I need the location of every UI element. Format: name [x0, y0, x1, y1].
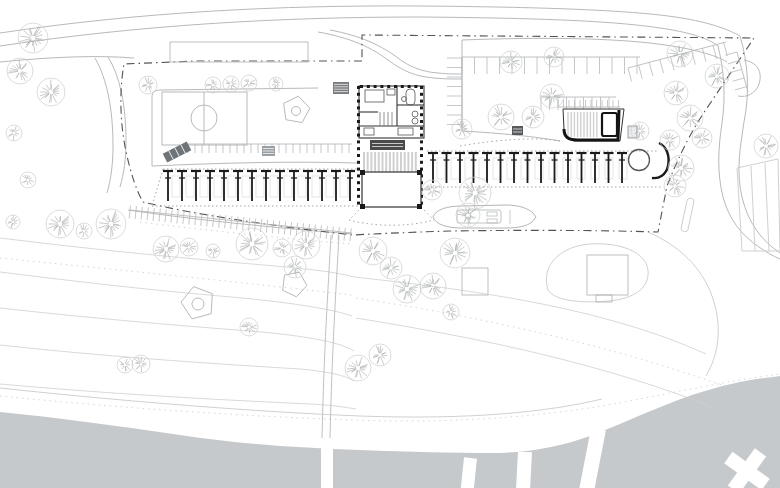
tree [132, 355, 150, 373]
pavilion-pentagon [283, 272, 307, 297]
boat-rack-post [469, 153, 479, 183]
boat-rack-post [275, 171, 285, 201]
boat-rack-post [428, 153, 438, 183]
tree [754, 134, 778, 158]
boat-rack-post [590, 153, 600, 183]
tree [664, 175, 686, 197]
tree [422, 180, 442, 200]
boat-rack-post [617, 153, 627, 183]
boat-hall [362, 172, 421, 207]
boat-rack-post [345, 171, 355, 201]
tree [692, 128, 712, 148]
tree [240, 318, 258, 336]
tree [236, 228, 268, 260]
boat-rack-post [317, 171, 327, 201]
tree [273, 239, 291, 257]
tree [46, 210, 74, 238]
tree [205, 77, 221, 93]
pier [321, 438, 333, 488]
turning-circle [629, 150, 650, 171]
tree [380, 257, 402, 279]
tree [96, 209, 126, 239]
building-footprint [170, 42, 308, 62]
tree [139, 76, 157, 94]
boat-rack-post [482, 153, 492, 183]
site-plan [0, 0, 780, 488]
stage [370, 140, 405, 150]
tree [117, 357, 133, 373]
pavilion-pentagon [284, 96, 310, 122]
building-footprint [587, 255, 628, 295]
boat-rack-post [247, 171, 257, 201]
boat-rack-post [550, 153, 560, 183]
tree [459, 177, 491, 209]
boat-rack-post [536, 153, 546, 183]
terrain-contours [0, 222, 780, 438]
boat-rack-post [496, 153, 506, 183]
boat-rack-post [331, 171, 341, 201]
tree [664, 81, 688, 105]
tree [705, 64, 729, 88]
tree [369, 344, 391, 366]
boat-rack-post [563, 153, 573, 183]
tree [500, 51, 522, 73]
tree [345, 355, 371, 381]
tree [677, 105, 703, 131]
boat-rack-post [303, 171, 313, 201]
boat-rack-post [523, 153, 533, 183]
boat-rack-post [205, 171, 215, 201]
tree [6, 215, 20, 229]
tree [180, 238, 198, 256]
pier [516, 452, 532, 488]
tree [20, 172, 36, 188]
tree [660, 130, 680, 150]
annex-building [563, 109, 624, 141]
boat-rack-post [233, 171, 243, 201]
tree [6, 125, 22, 141]
tree [18, 23, 48, 53]
tree [393, 275, 421, 303]
tree [522, 106, 544, 128]
boat-rack-post [163, 171, 173, 201]
boat-rack-post [219, 171, 229, 201]
pavilion-pentagon [181, 287, 212, 319]
tree [37, 78, 65, 106]
boat-rack-post [191, 171, 201, 201]
tree [153, 236, 179, 262]
stairs [333, 82, 349, 94]
stairs [512, 126, 523, 135]
site-plan-svg [0, 0, 780, 488]
tree [206, 244, 220, 258]
tree [440, 238, 470, 268]
tree [292, 231, 320, 259]
tree [540, 84, 564, 108]
boat-rack-post [261, 171, 271, 201]
boat [433, 205, 536, 228]
main-building [357, 85, 424, 209]
tree [443, 304, 459, 320]
boat-rack-post [442, 153, 452, 183]
boat-rack-post [455, 153, 465, 183]
roads-layer [0, 6, 780, 417]
tree [76, 223, 92, 239]
boat-rack-post [289, 171, 299, 201]
boundary-line [121, 35, 754, 235]
tree [7, 58, 33, 84]
boat-hull [433, 205, 536, 228]
boat-rack-post [509, 153, 519, 183]
tree [488, 104, 514, 130]
boat-rack-post [177, 171, 187, 201]
